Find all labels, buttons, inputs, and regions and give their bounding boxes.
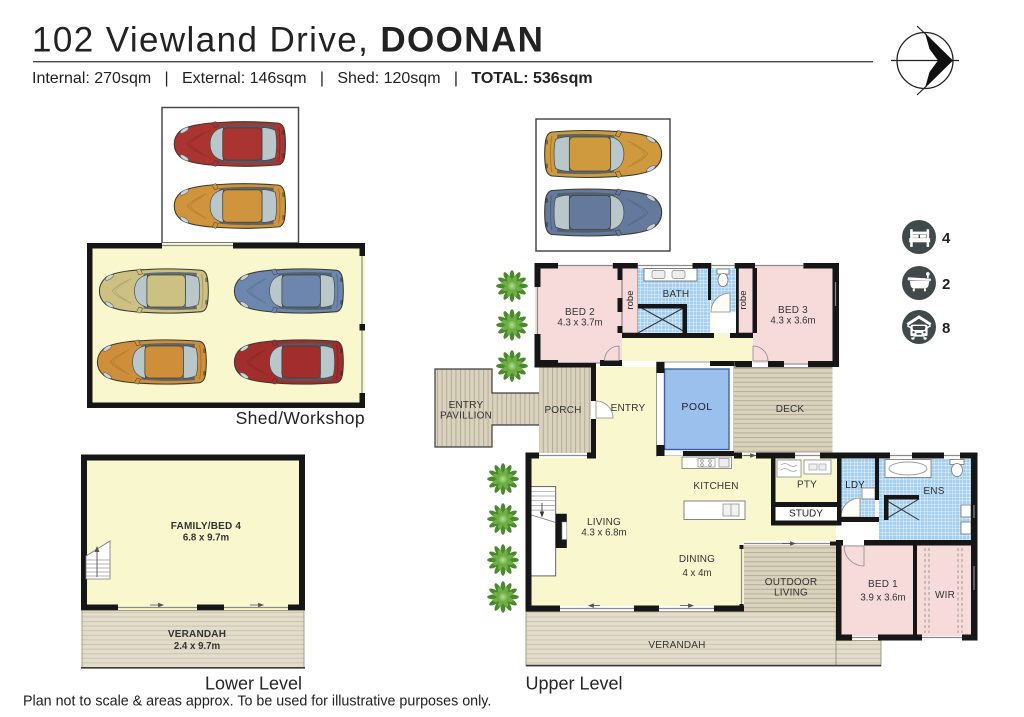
svg-text:DECK: DECK bbox=[776, 404, 805, 415]
svg-text:Upper Level: Upper Level bbox=[526, 674, 623, 694]
svg-text:4: 4 bbox=[942, 230, 951, 247]
svg-text:DINING: DINING bbox=[679, 554, 715, 565]
svg-text:LIVING: LIVING bbox=[774, 588, 808, 599]
svg-text:VERANDAH: VERANDAH bbox=[648, 640, 705, 651]
svg-text:PORCH: PORCH bbox=[544, 405, 581, 416]
svg-text:PTY: PTY bbox=[797, 480, 817, 491]
svg-text:Shed/Workshop: Shed/Workshop bbox=[236, 408, 365, 428]
svg-text:POOL: POOL bbox=[681, 401, 712, 413]
svg-text:OUTDOOR: OUTDOOR bbox=[765, 577, 818, 588]
svg-text:4.3 x 3.7m: 4.3 x 3.7m bbox=[557, 318, 602, 329]
svg-text:ENTRY: ENTRY bbox=[611, 403, 646, 414]
svg-text:BATH: BATH bbox=[663, 289, 690, 300]
svg-text:BED 2: BED 2 bbox=[565, 307, 595, 318]
svg-text:2.4 x 9.7m: 2.4 x 9.7m bbox=[174, 641, 221, 652]
svg-text:ENS: ENS bbox=[923, 486, 944, 497]
svg-text:ENTRY: ENTRY bbox=[449, 400, 484, 411]
svg-text:6.8 x 9.7m: 6.8 x 9.7m bbox=[183, 533, 230, 544]
svg-text:Lower Level: Lower Level bbox=[205, 674, 302, 694]
svg-text:FAMILY/BED 4: FAMILY/BED 4 bbox=[171, 521, 242, 532]
svg-text:102 Viewland Drive, DOONAN: 102 Viewland Drive, DOONAN bbox=[32, 21, 544, 60]
svg-text:Internal: 270sqm | Externa: Internal: 270sqm | External: 146sqm | Sh… bbox=[32, 70, 593, 87]
svg-text:VERANDAH: VERANDAH bbox=[168, 629, 226, 640]
svg-text:4 x 4m: 4 x 4m bbox=[682, 568, 711, 579]
svg-text:8: 8 bbox=[942, 320, 950, 337]
svg-text:2: 2 bbox=[942, 276, 950, 293]
svg-text:KITCHEN: KITCHEN bbox=[693, 481, 738, 492]
svg-text:robe: robe bbox=[625, 290, 636, 309]
svg-text:LIVING: LIVING bbox=[587, 517, 621, 528]
svg-text:Plan not to scale & areas appr: Plan not to scale & areas approx. To be … bbox=[23, 694, 491, 710]
svg-text:4.3 x 3.6m: 4.3 x 3.6m bbox=[770, 316, 815, 327]
svg-text:4.3 x 6.8m: 4.3 x 6.8m bbox=[581, 528, 626, 539]
svg-text:WIR: WIR bbox=[935, 590, 955, 601]
svg-text:BED 3: BED 3 bbox=[778, 305, 808, 316]
svg-text:3.9 x 3.6m: 3.9 x 3.6m bbox=[860, 593, 905, 604]
svg-text:BED 1: BED 1 bbox=[868, 579, 898, 590]
svg-text:STUDY: STUDY bbox=[789, 509, 823, 520]
svg-text:PAVILLION: PAVILLION bbox=[440, 411, 492, 422]
svg-text:robe: robe bbox=[738, 290, 749, 309]
